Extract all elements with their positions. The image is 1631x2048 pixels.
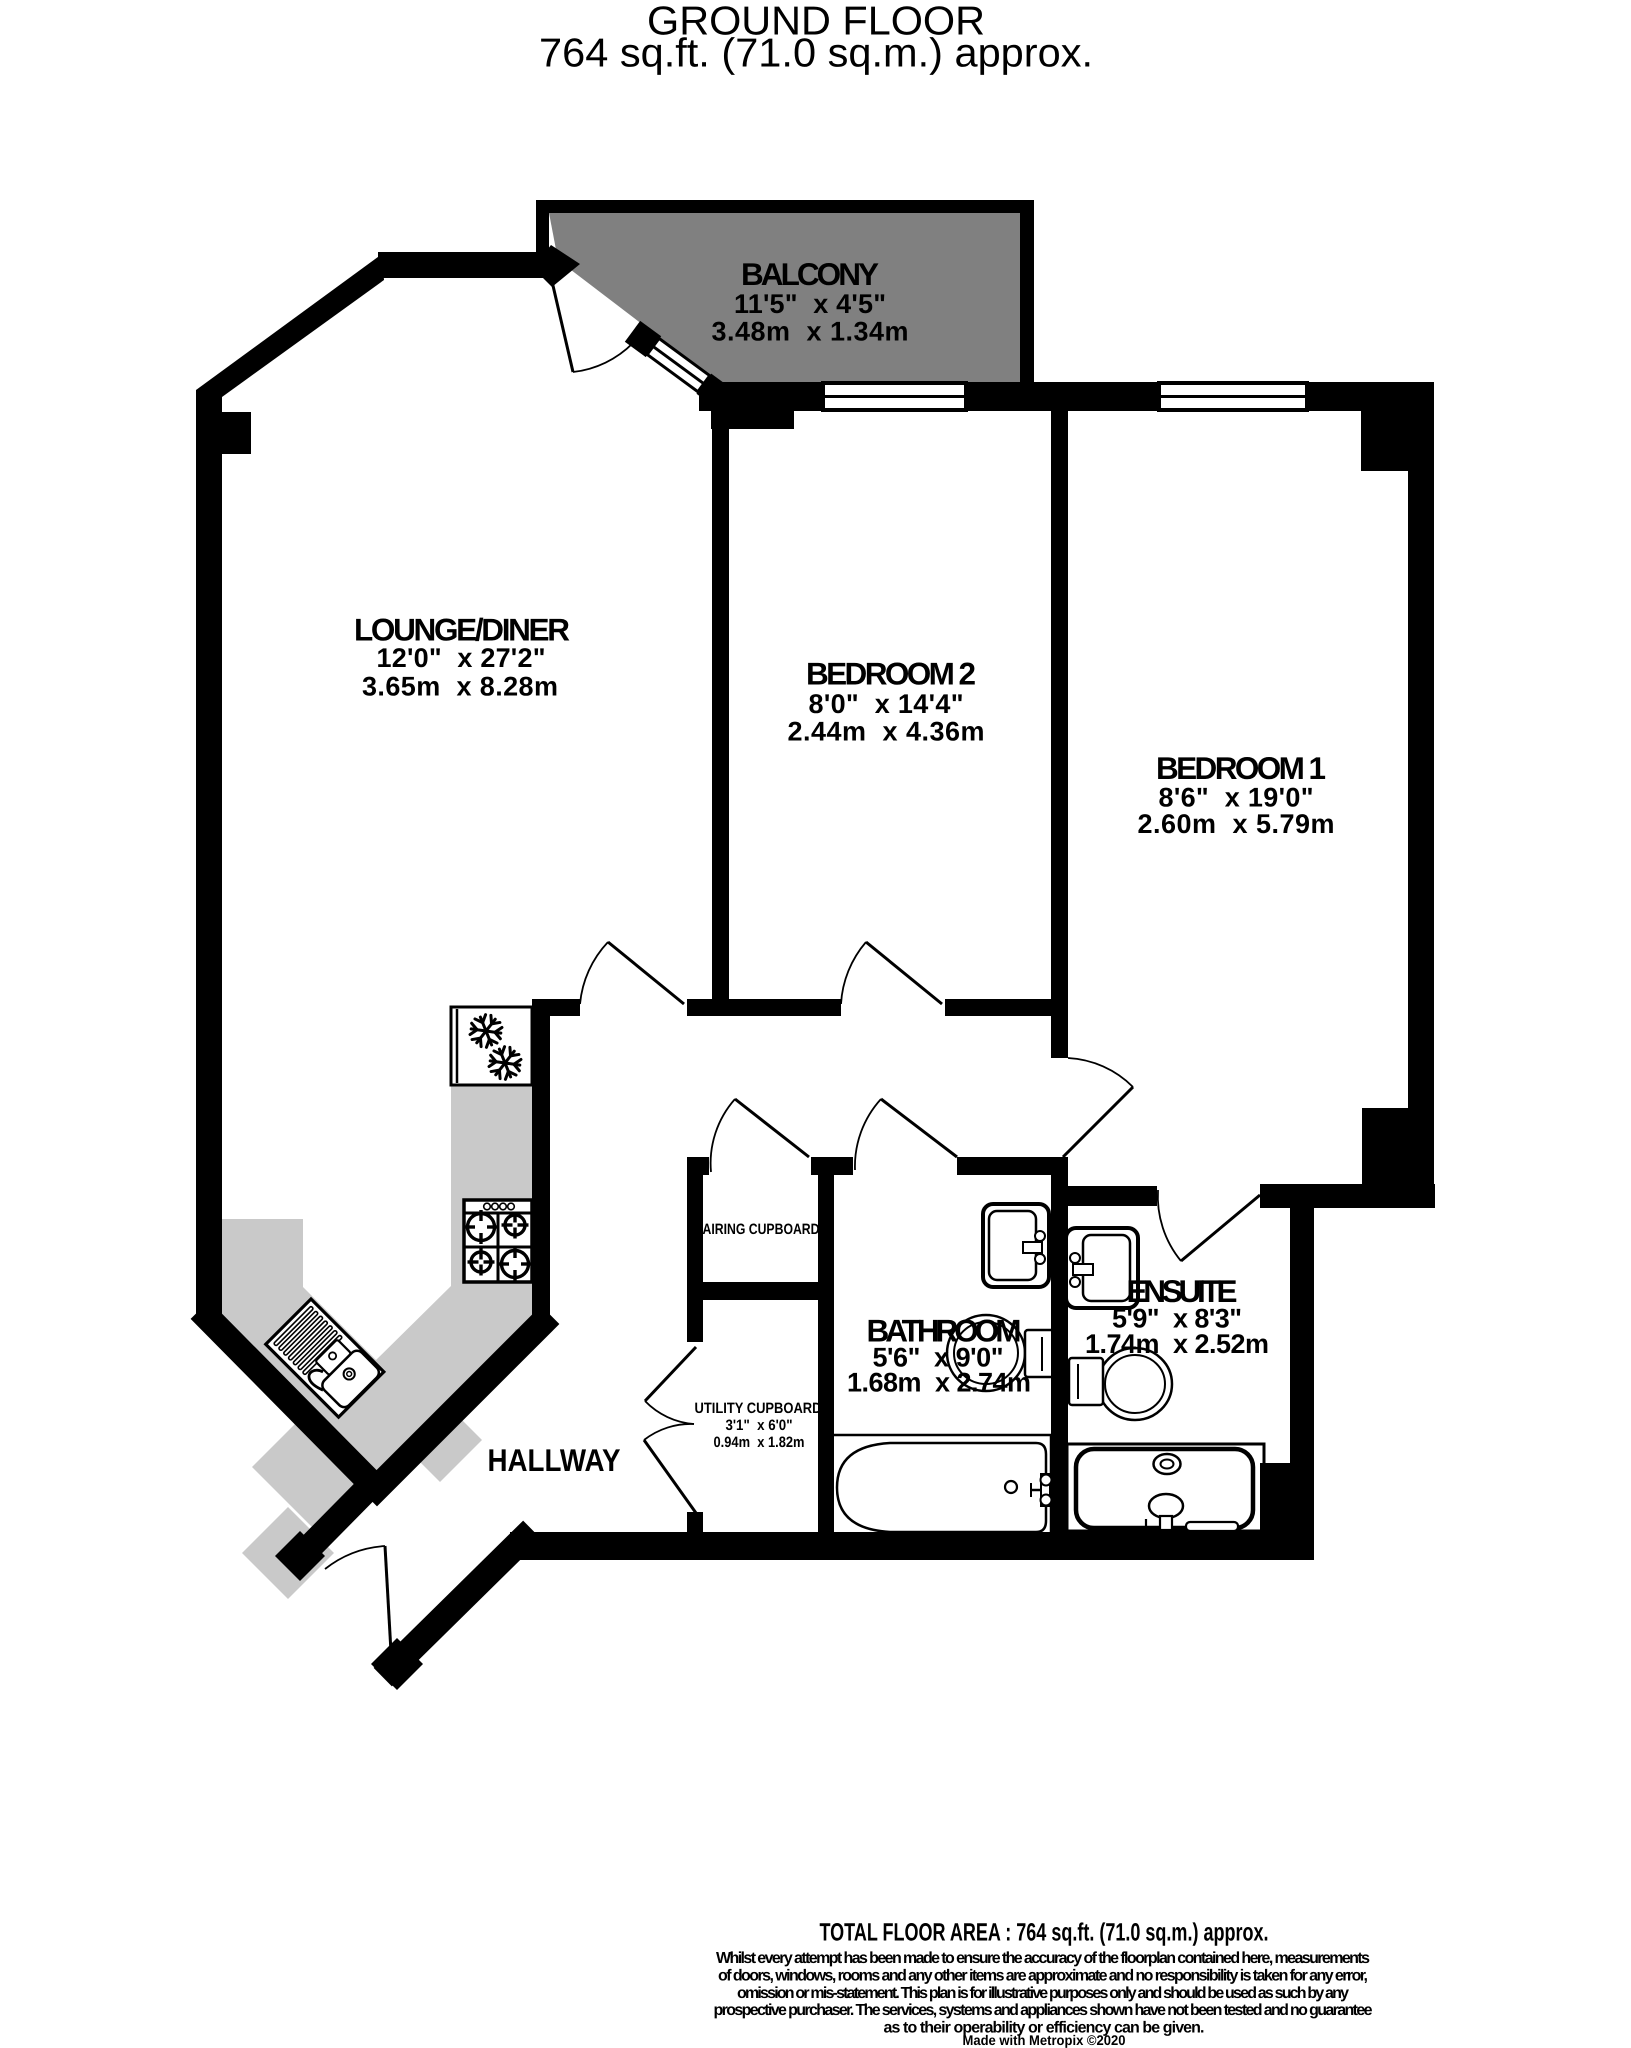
- svg-text:BALCONY: BALCONY: [741, 256, 879, 292]
- svg-text:11'5" x 4'5": 11'5" x 4'5": [734, 289, 886, 319]
- svg-text:8'6" x 19'0": 8'6" x 19'0": [1159, 782, 1314, 812]
- svg-text:BEDROOM 2: BEDROOM 2: [806, 656, 976, 692]
- svg-text:3.48m x 1.34m: 3.48m x 1.34m: [712, 316, 909, 346]
- svg-text:HALLWAY: HALLWAY: [488, 1442, 621, 1478]
- svg-text:Whilst every attempt has been: Whilst every attempt has been made to en…: [716, 1950, 1370, 1967]
- svg-text:764 sq.ft. (71.0 sq.m.) approx: 764 sq.ft. (71.0 sq.m.) approx.: [539, 30, 1093, 76]
- svg-text:AIRING CUPBOARD: AIRING CUPBOARD: [703, 1221, 820, 1238]
- svg-text:of doors, windows, rooms and a: of doors, windows, rooms and any other i…: [718, 1967, 1368, 1984]
- svg-text:1.68m x 2.74m: 1.68m x 2.74m: [847, 1367, 1031, 1397]
- svg-text:Made with Metropix ©2020: Made with Metropix ©2020: [963, 2032, 1126, 2048]
- svg-text:prospective purchaser. The ser: prospective purchaser. The services, sys…: [714, 2002, 1373, 2019]
- svg-text:8'0" x 14'4": 8'0" x 14'4": [809, 689, 964, 719]
- svg-text:UTILITY CUPBOARD: UTILITY CUPBOARD: [695, 1400, 822, 1417]
- svg-text:1.74m x 2.52m: 1.74m x 2.52m: [1085, 1329, 1269, 1359]
- svg-text:2.44m x 4.36m: 2.44m x 4.36m: [788, 716, 985, 746]
- svg-text:3'1" x 6'0": 3'1" x 6'0": [726, 1417, 793, 1434]
- svg-text:0.94m x 1.82m: 0.94m x 1.82m: [714, 1434, 805, 1451]
- svg-text:TOTAL FLOOR AREA : 764 sq.ft.: TOTAL FLOOR AREA : 764 sq.ft. (71.0 sq.m…: [820, 1919, 1269, 1947]
- svg-text:BEDROOM 1: BEDROOM 1: [1156, 750, 1326, 786]
- svg-text:2.60m x 5.79m: 2.60m x 5.79m: [1138, 809, 1335, 839]
- svg-text:12'0" x 27'2": 12'0" x 27'2": [377, 643, 546, 673]
- svg-text:3.65m x 8.28m: 3.65m x 8.28m: [362, 671, 558, 701]
- svg-text:omission or mis-statement. Thi: omission or mis-statement. This plan is …: [737, 1985, 1349, 2002]
